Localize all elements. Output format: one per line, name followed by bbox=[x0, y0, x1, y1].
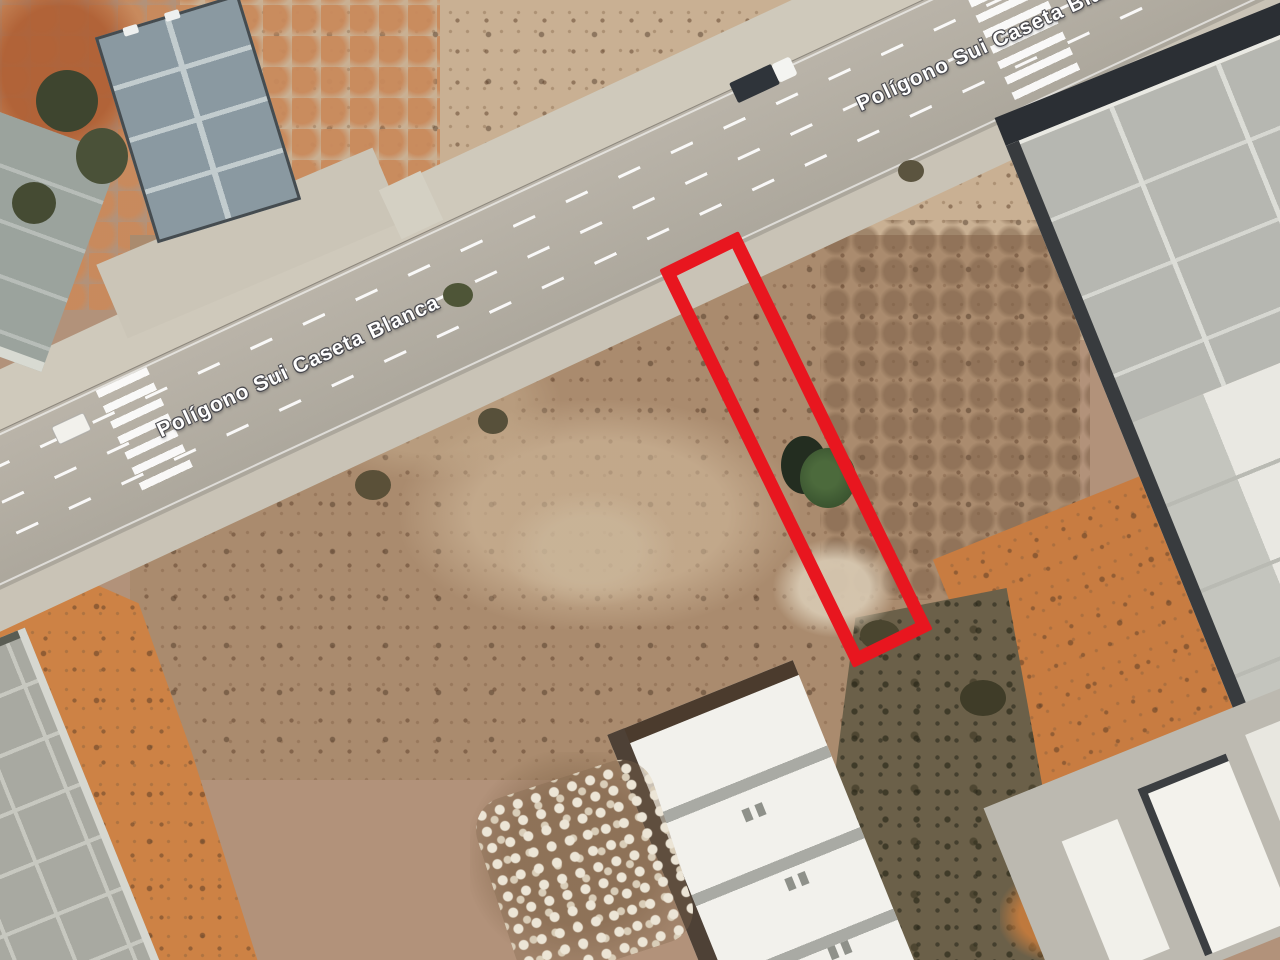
bush-icon bbox=[898, 160, 924, 182]
bush-icon bbox=[478, 408, 508, 434]
roof-edge-highlight bbox=[0, 315, 45, 372]
bush-icon bbox=[12, 182, 56, 224]
white-container bbox=[1062, 819, 1170, 960]
bush-icon bbox=[355, 470, 391, 500]
satellite-map[interactable]: Polígono Sui Caseta Blanca Polígono Sui … bbox=[0, 0, 1280, 960]
bush-icon bbox=[76, 128, 128, 184]
bush-icon bbox=[960, 680, 1006, 716]
white-sand-patch bbox=[505, 492, 675, 607]
bush-icon bbox=[443, 283, 473, 307]
bush-icon bbox=[36, 70, 98, 132]
